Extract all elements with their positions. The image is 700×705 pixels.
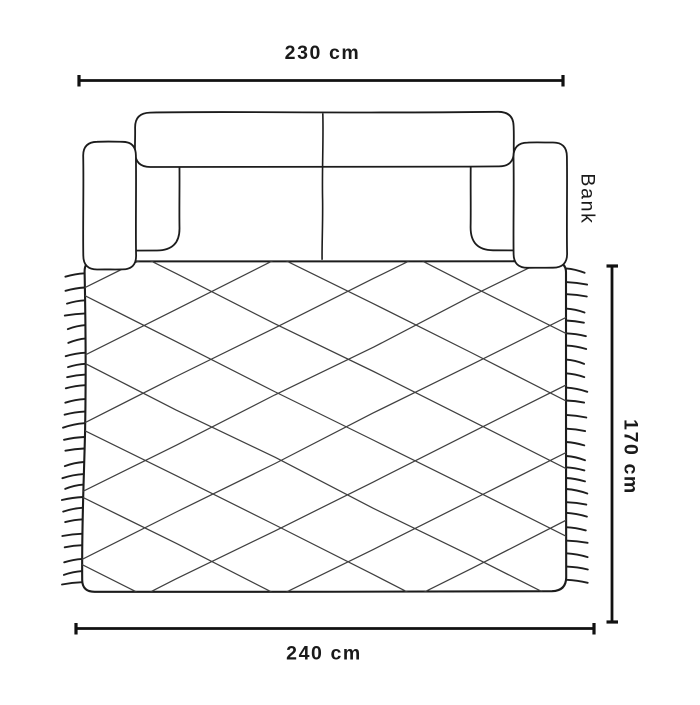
svg-text:Bank: Bank	[577, 173, 599, 224]
svg-text:230 cm: 230 cm	[285, 42, 361, 64]
svg-text:240 cm: 240 cm	[286, 643, 362, 665]
svg-text:170 cm: 170 cm	[620, 419, 642, 495]
